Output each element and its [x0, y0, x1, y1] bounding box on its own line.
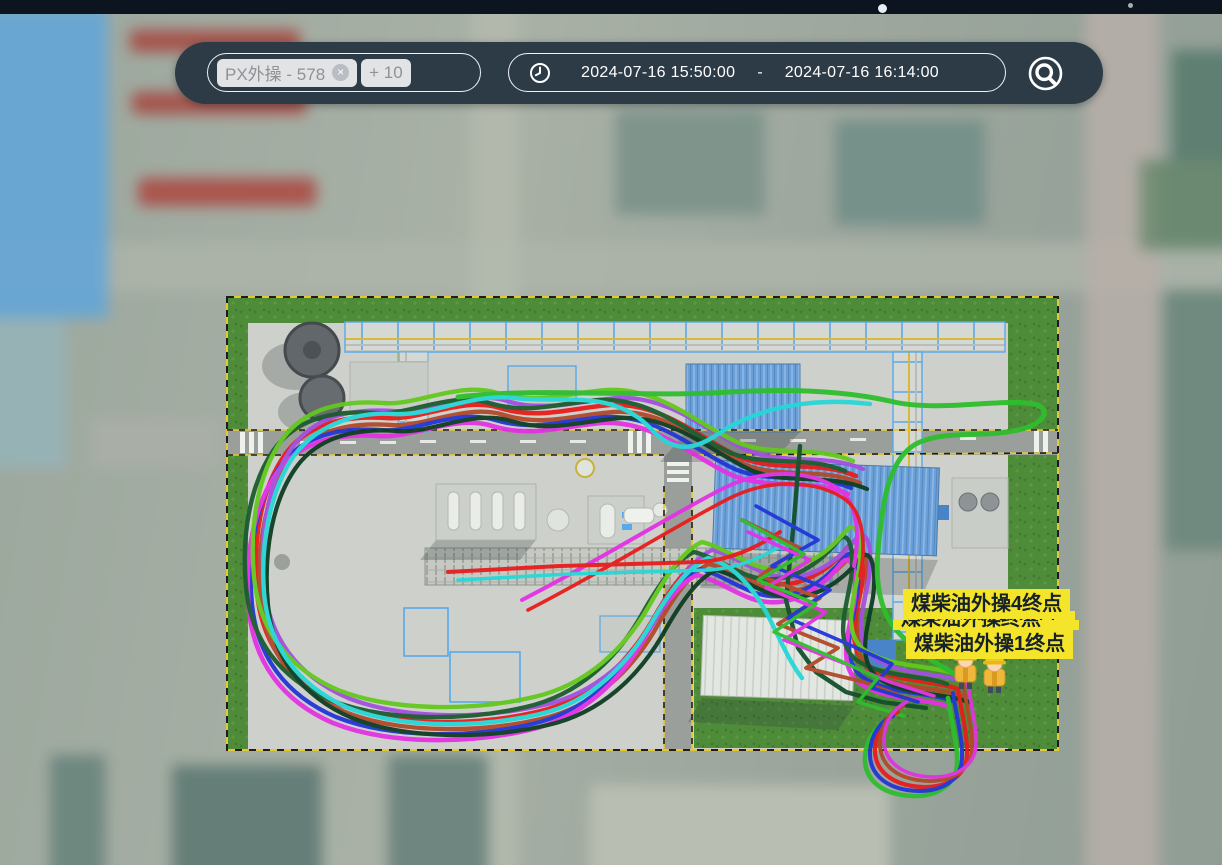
- more-tags-chip[interactable]: + 10: [361, 59, 411, 87]
- search-tag-label: PX外操 - 578: [225, 60, 325, 85]
- remove-tag-icon[interactable]: ×: [332, 64, 349, 81]
- start-datetime[interactable]: 2024-07-16 15:50:00: [581, 64, 735, 82]
- time-range-picker[interactable]: 2024-07-16 15:50:00 - 2024-07-16 16:14:0…: [508, 53, 1006, 92]
- magnifier-target-icon: [1027, 55, 1064, 92]
- toolbar: PX外操 - 578 × + 10 2024-07-16 15:50:00 - …: [175, 42, 1103, 104]
- search-locate-button[interactable]: [1027, 55, 1064, 92]
- facility-map[interactable]: [0, 0, 1222, 865]
- app-screen: 煤柴油外操终点 煤柴油外操终点 煤柴油外操4终点 煤柴油外操1终点 PX外操 -…: [0, 0, 1222, 865]
- search-input[interactable]: PX外操 - 578 × + 10: [207, 53, 481, 92]
- endpoint-label: 煤柴油外操1终点: [906, 629, 1073, 659]
- range-separator: -: [757, 64, 762, 82]
- search-tag-chip[interactable]: PX外操 - 578 ×: [217, 59, 357, 87]
- clock-icon: [529, 62, 551, 84]
- end-datetime[interactable]: 2024-07-16 16:14:00: [785, 64, 939, 82]
- endpoint-label: 煤柴油外操4终点: [903, 589, 1070, 619]
